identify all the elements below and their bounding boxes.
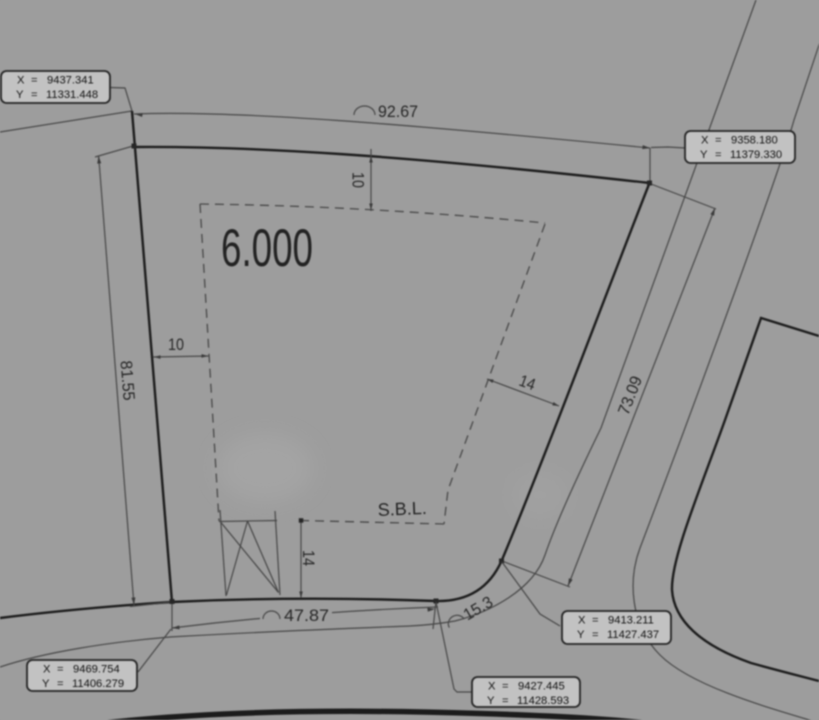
svg-text:47.87: 47.87 bbox=[284, 607, 329, 625]
svg-text:10: 10 bbox=[349, 172, 367, 188]
svg-text:S.B.L.: S.B.L. bbox=[377, 498, 427, 520]
svg-text:14: 14 bbox=[299, 550, 317, 566]
svg-text:6.000: 6.000 bbox=[221, 219, 313, 278]
svg-text:92.67: 92.67 bbox=[378, 103, 418, 121]
svg-text:10: 10 bbox=[168, 336, 184, 354]
svg-text:81.55: 81.55 bbox=[117, 360, 138, 401]
